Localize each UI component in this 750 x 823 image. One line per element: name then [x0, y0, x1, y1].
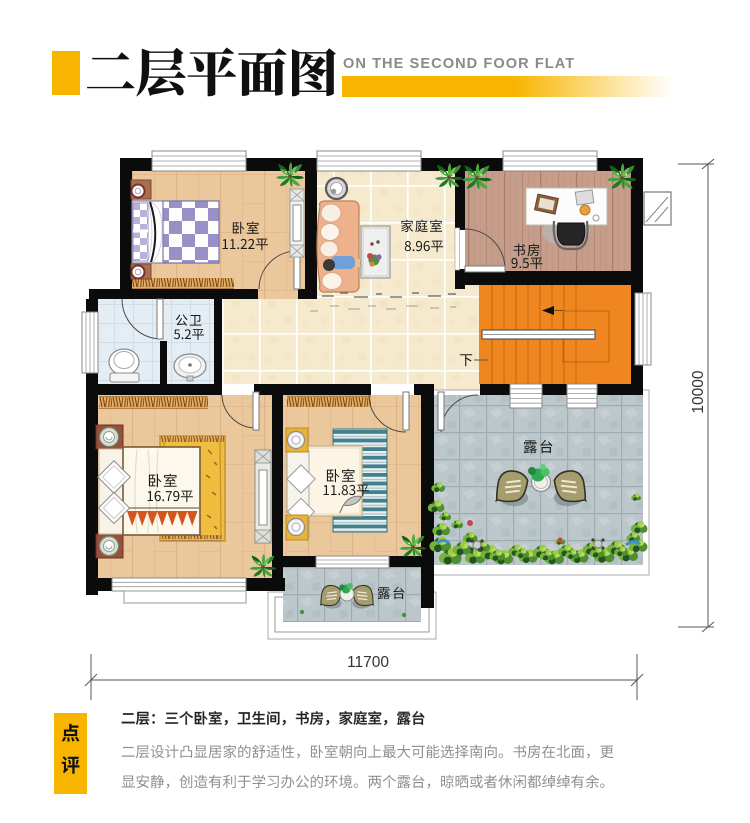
svg-text:ON THE SECOND FOOR FLAT: ON THE SECOND FOOR FLAT [343, 56, 575, 72]
svg-text:11700: 11700 [347, 654, 389, 671]
svg-text:10000: 10000 [690, 370, 707, 413]
